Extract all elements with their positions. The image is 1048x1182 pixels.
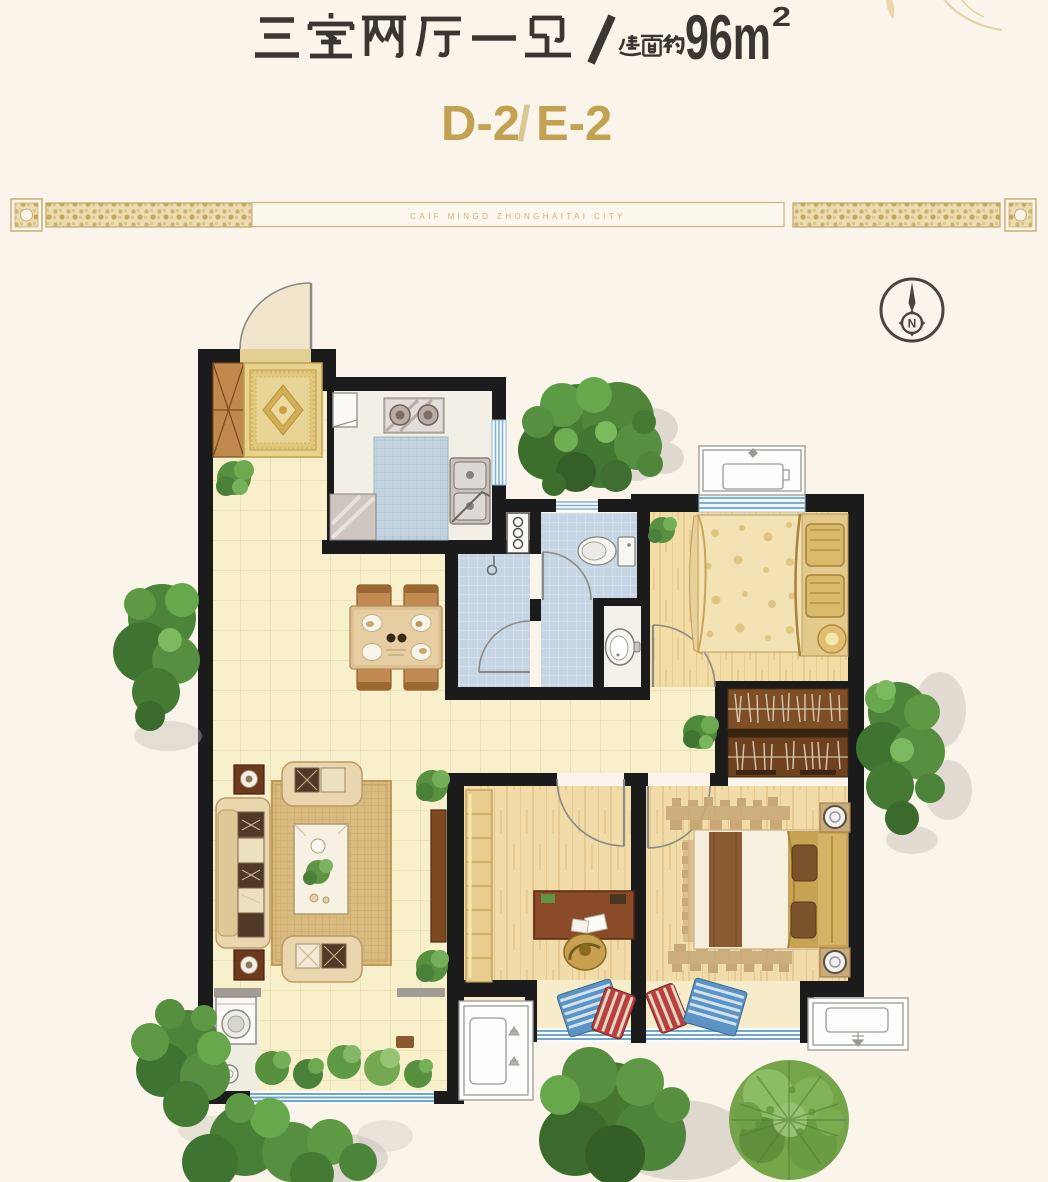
svg-text:D-2: D-2	[441, 97, 520, 151]
svg-text:CAIF MINGD ZHONGHAITAI CITY: CAIF MINGD ZHONGHAITAI CITY	[410, 212, 626, 221]
svg-text:N: N	[908, 317, 917, 331]
svg-text:96m: 96m	[685, 3, 771, 73]
svg-text:2: 2	[772, 1, 791, 32]
svg-text:/: /	[517, 97, 531, 151]
svg-text:E-2: E-2	[536, 97, 612, 151]
